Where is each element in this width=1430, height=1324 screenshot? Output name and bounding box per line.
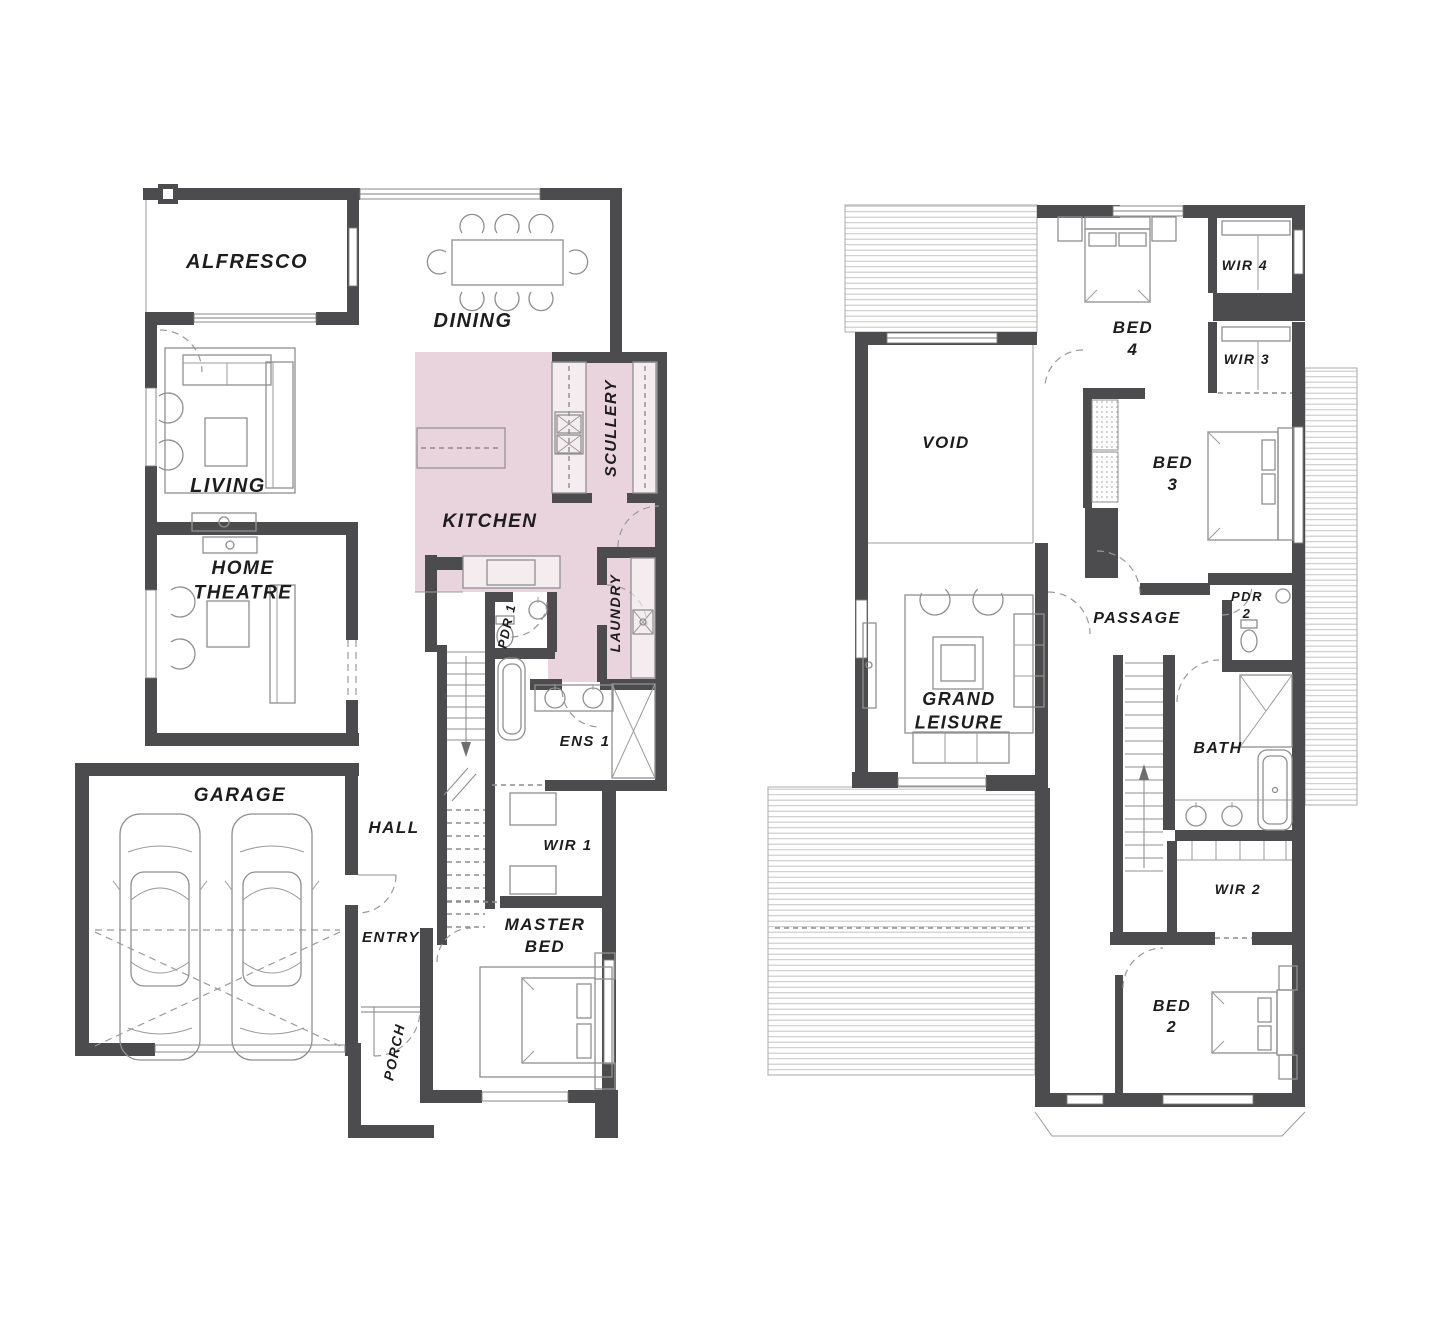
rect-shape	[1252, 932, 1305, 945]
room-label-garage: GARAGE	[194, 785, 286, 806]
rect-shape	[1113, 655, 1123, 940]
rect-shape	[1258, 998, 1271, 1022]
scullery-counter	[633, 362, 657, 493]
use-shape	[171, 639, 195, 669]
room-label-laundry: LAUNDRY	[607, 574, 623, 653]
rect-shape	[482, 1092, 568, 1101]
rect-shape	[1263, 756, 1287, 824]
room-label-wir-4: WIR 4	[1222, 257, 1268, 273]
roof-hatch-right	[1305, 368, 1357, 805]
rect-shape	[349, 228, 357, 286]
rect-shape	[1067, 1095, 1103, 1104]
windows-ground	[146, 189, 614, 1101]
rect-shape	[1085, 217, 1150, 229]
tspan-shape: BATH	[1193, 740, 1242, 757]
rect-shape	[75, 1043, 155, 1056]
use-shape	[427, 250, 446, 274]
circle-shape	[1222, 806, 1242, 826]
circle-shape	[1273, 788, 1278, 793]
tspan-shape: SCULLERY	[603, 379, 620, 477]
rect-shape	[1208, 573, 1305, 585]
wir2-rail	[1177, 841, 1292, 860]
tspan-shape: THEATRE	[194, 583, 293, 604]
tspan-shape: BED	[1113, 318, 1153, 337]
kitchen-island	[417, 428, 505, 468]
rect-shape	[145, 522, 355, 535]
tspan-shape: GRAND	[922, 689, 996, 709]
master-bed-furniture	[480, 953, 615, 1089]
path-shape	[1048, 592, 1090, 634]
use-shape	[495, 214, 519, 233]
rect-shape	[437, 645, 447, 945]
rect-shape	[1163, 655, 1175, 830]
rect-shape	[316, 312, 359, 325]
room-label-entry: ENTRY	[362, 929, 421, 946]
room-label-pdr-2: PDR2	[1231, 589, 1263, 621]
rect-shape	[898, 778, 986, 786]
bed3-furniture	[1208, 428, 1293, 540]
laundry-bench	[631, 558, 655, 678]
rect-shape	[1292, 322, 1305, 398]
rect-shape	[855, 332, 868, 545]
rect-shape	[165, 348, 295, 493]
room-label-ens-1: ENS 1	[560, 733, 611, 750]
room-label-bed-3: BED3	[1153, 453, 1193, 494]
use-shape	[971, 589, 1005, 618]
use-shape	[569, 250, 588, 274]
rect-shape	[540, 188, 622, 200]
path-shape	[1212, 992, 1224, 1053]
rect-shape	[500, 896, 604, 908]
rect-shape	[1035, 788, 1050, 1093]
room-label-wir-3: WIR 3	[1224, 351, 1270, 367]
rect-shape	[1175, 830, 1305, 841]
use-shape	[171, 587, 195, 617]
room-label-bed-2: BED2	[1153, 998, 1191, 1036]
circle-shape	[529, 601, 547, 619]
tspan-shape: PORCH	[380, 1022, 408, 1082]
bed4-furniture	[1058, 217, 1176, 302]
rect-shape	[485, 592, 513, 602]
staircase-first	[1125, 663, 1163, 871]
rect-shape	[1083, 388, 1145, 399]
rect-shape	[913, 732, 1009, 763]
use-shape	[225, 814, 319, 1060]
polygon-shape	[461, 742, 471, 757]
use-shape	[159, 440, 183, 470]
tspan-shape: GARAGE	[194, 785, 286, 806]
rect-shape	[345, 905, 358, 1043]
room-label-dining: DINING	[434, 310, 513, 332]
rect-shape	[1167, 841, 1177, 932]
rect-shape	[1208, 205, 1217, 293]
first-floor: WIR 4BED4WIR 3VOIDBED3PASSAGEPDR2GRANDLE…	[768, 205, 1357, 1136]
room-label-master-bed: MASTERBED	[505, 915, 586, 956]
rect-shape	[552, 493, 592, 503]
ground-floor: ALFRESCODININGLIVINGHOMETHEATREKITCHENSC…	[75, 184, 667, 1138]
rect-shape	[510, 793, 556, 825]
rect-shape	[1119, 233, 1146, 246]
roof-hatch-top-left	[845, 205, 1037, 332]
room-label-alfresco: ALFRESCO	[185, 251, 308, 273]
tspan-shape: PASSAGE	[1093, 610, 1181, 627]
rect-shape	[597, 625, 607, 682]
line-shape	[452, 774, 476, 801]
tspan-shape: PDR	[1231, 589, 1263, 604]
tspan-shape: ENS 1	[560, 733, 611, 750]
room-label-bath: BATH	[1193, 740, 1242, 757]
rect-shape	[1083, 398, 1092, 508]
path-shape	[1177, 660, 1219, 702]
rect-shape	[1222, 221, 1290, 235]
rect-shape	[600, 780, 667, 791]
rect-shape	[577, 984, 591, 1018]
rect-shape	[1089, 233, 1116, 246]
rect-shape	[485, 648, 555, 659]
floor-plan-page: ALFRESCODININGLIVINGHOMETHEATREKITCHENSC…	[0, 0, 1430, 1324]
tspan-shape: BED	[525, 937, 565, 956]
use-shape	[159, 393, 183, 423]
tspan-shape: LEISURE	[915, 712, 1004, 732]
path-shape	[522, 978, 534, 1063]
rect-shape	[986, 775, 1038, 791]
rect-shape	[425, 555, 437, 652]
bed2-furniture	[1212, 966, 1297, 1079]
tspan-shape: 4	[1127, 340, 1139, 359]
rect-shape	[941, 645, 975, 681]
staircase-ground	[444, 652, 485, 927]
path-shape	[1035, 1112, 1305, 1136]
rect-shape	[203, 537, 257, 553]
grand-leisure-set	[863, 589, 1044, 763]
rect-shape	[1294, 427, 1303, 543]
rect-shape	[437, 557, 463, 570]
use-shape	[460, 214, 484, 233]
tspan-shape: DINING	[434, 310, 513, 332]
rect-shape	[1294, 230, 1303, 274]
rect-shape	[1258, 1026, 1271, 1050]
tspan-shape: WIR 4	[1222, 257, 1268, 273]
rect-shape	[155, 1045, 345, 1052]
circle-shape	[1276, 589, 1290, 603]
tspan-shape: 3	[1168, 475, 1179, 494]
deck-hatch-bottom-left	[768, 787, 1035, 1075]
tspan-shape: HOME	[212, 558, 275, 579]
kitchen-counter	[552, 362, 586, 493]
rect-shape	[348, 1043, 361, 1138]
polygon-shape	[1139, 764, 1149, 780]
tspan-shape: KITCHEN	[443, 511, 538, 532]
path-shape	[1045, 350, 1083, 388]
rect-shape	[856, 600, 867, 658]
path-shape	[1123, 948, 1163, 988]
rect-shape	[75, 763, 359, 776]
rect-shape	[1152, 217, 1176, 241]
path-shape	[1240, 675, 1292, 747]
use-shape	[495, 292, 519, 311]
dining-table	[427, 214, 587, 310]
rect-shape	[420, 1090, 482, 1103]
rect-shape	[577, 1024, 591, 1058]
rect-shape	[146, 388, 156, 466]
circle-shape	[1186, 806, 1206, 826]
rect-shape	[452, 240, 563, 285]
room-label-passage: PASSAGE	[1093, 610, 1181, 627]
rect-shape	[266, 362, 293, 488]
room-label-kitchen: KITCHEN	[443, 511, 538, 532]
rect-shape	[607, 547, 667, 558]
tspan-shape: BED	[1153, 998, 1191, 1015]
rect-shape	[1277, 990, 1293, 1055]
rect-shape	[146, 590, 156, 678]
rect-shape	[1222, 327, 1290, 341]
rect-shape	[503, 664, 521, 734]
path-shape	[358, 875, 396, 913]
rect-shape	[633, 362, 657, 493]
tspan-shape: 2	[1166, 1019, 1177, 1036]
room-label-porch: PORCH	[380, 1022, 408, 1082]
rect-shape	[627, 493, 667, 503]
tspan-shape: LIVING	[190, 475, 266, 497]
garage-cars	[95, 814, 340, 1060]
tspan-shape: PDR 1	[495, 602, 519, 650]
path-shape	[95, 932, 340, 1046]
use-shape	[460, 292, 484, 311]
rect-shape	[1035, 543, 1048, 793]
rect-shape	[346, 522, 358, 640]
rect-shape	[145, 535, 157, 590]
tspan-shape: BED	[1153, 453, 1193, 472]
rect-shape	[1278, 428, 1293, 540]
rect-shape	[1241, 620, 1257, 628]
floor-plan-canvas: ALFRESCODININGLIVINGHOMETHEATREKITCHENSC…	[0, 0, 1430, 1324]
rect-shape	[480, 967, 612, 1077]
bed3-robe	[1092, 400, 1118, 502]
rect-shape	[145, 466, 157, 522]
room-label-hall: HALL	[368, 818, 419, 837]
tspan-shape: HALL	[368, 818, 419, 837]
rect-shape	[597, 547, 607, 585]
rect-shape	[346, 700, 358, 746]
rect-shape	[1163, 1095, 1253, 1104]
line-shape	[444, 768, 468, 795]
rect-shape	[852, 772, 898, 788]
rect-shape	[145, 312, 157, 388]
rect-shape	[1092, 400, 1118, 450]
rect-shape	[610, 190, 622, 355]
rect-shape	[655, 680, 667, 782]
use-shape	[113, 814, 207, 1060]
tspan-shape: MASTER	[505, 915, 586, 934]
room-label-home-theatre: HOMETHEATRE	[194, 558, 293, 604]
rect-shape	[1213, 293, 1305, 321]
rect-shape	[1085, 508, 1118, 578]
rect-shape	[420, 928, 433, 1090]
tspan-shape: WIR 1	[543, 837, 592, 854]
circle-shape	[583, 688, 603, 708]
tspan-shape: 2	[1242, 606, 1252, 621]
rect-shape	[631, 558, 655, 678]
rect-shape	[345, 763, 358, 875]
rect-shape	[163, 189, 173, 199]
rect-shape	[348, 1125, 434, 1138]
rect-shape	[485, 592, 495, 909]
tspan-shape: VOID	[922, 433, 970, 452]
circle-shape	[226, 541, 234, 549]
ellipse-shape	[1241, 630, 1257, 652]
rect-shape	[1092, 452, 1118, 502]
wir4-shelves	[1222, 221, 1290, 290]
rect-shape	[75, 763, 89, 1056]
rect-shape	[1058, 217, 1082, 241]
tspan-shape: WIR 2	[1215, 881, 1261, 897]
rect-shape	[1037, 205, 1120, 218]
bay-eave-outline	[1035, 1112, 1305, 1136]
tspan-shape: ALFRESCO	[185, 251, 308, 273]
rect-shape	[1115, 975, 1123, 1093]
home-theatre-set	[171, 513, 295, 703]
tspan-shape: LAUNDRY	[607, 574, 623, 653]
rect-shape	[1140, 583, 1210, 595]
rect-shape	[145, 678, 157, 733]
circle-shape	[545, 688, 565, 708]
rect-shape	[463, 556, 560, 588]
rect-shape	[145, 733, 359, 746]
use-shape	[919, 589, 953, 618]
rect-shape	[1208, 322, 1217, 393]
room-label-wir-1: WIR 1	[543, 837, 592, 854]
room-label-void: VOID	[922, 433, 970, 452]
rect-shape	[205, 418, 247, 466]
path-shape	[1085, 290, 1150, 302]
tspan-shape: WIR 3	[1224, 351, 1270, 367]
rect-shape	[1183, 205, 1305, 218]
rect-shape	[547, 592, 557, 652]
path-shape	[1208, 432, 1220, 540]
rect-shape	[595, 1090, 618, 1138]
path-shape	[160, 330, 202, 372]
use-shape	[529, 292, 553, 311]
rect-shape	[1222, 600, 1232, 662]
room-label-grand-leisure: GRANDLEISURE	[915, 689, 1004, 732]
path-shape	[612, 684, 655, 778]
room-label-pdr-1: PDR 1	[495, 602, 519, 650]
rect-shape	[207, 601, 249, 647]
room-label-bed-4: BED4	[1113, 318, 1153, 359]
room-label-wir-2: WIR 2	[1215, 881, 1261, 897]
rect-shape	[1262, 474, 1275, 504]
use-shape	[529, 214, 553, 233]
room-label-scullery: SCULLERY	[603, 379, 620, 477]
rect-shape	[510, 866, 556, 894]
room-label-living: LIVING	[190, 475, 266, 497]
rect-shape	[1085, 229, 1150, 302]
tspan-shape: ENTRY	[362, 929, 421, 946]
rect-shape	[1222, 660, 1292, 672]
rect-shape	[1262, 440, 1275, 470]
rect-shape	[1110, 932, 1215, 945]
rect-shape	[522, 978, 595, 1063]
living-sofa-set	[159, 348, 295, 493]
rect-shape	[545, 780, 603, 791]
rect-shape	[1208, 432, 1278, 540]
